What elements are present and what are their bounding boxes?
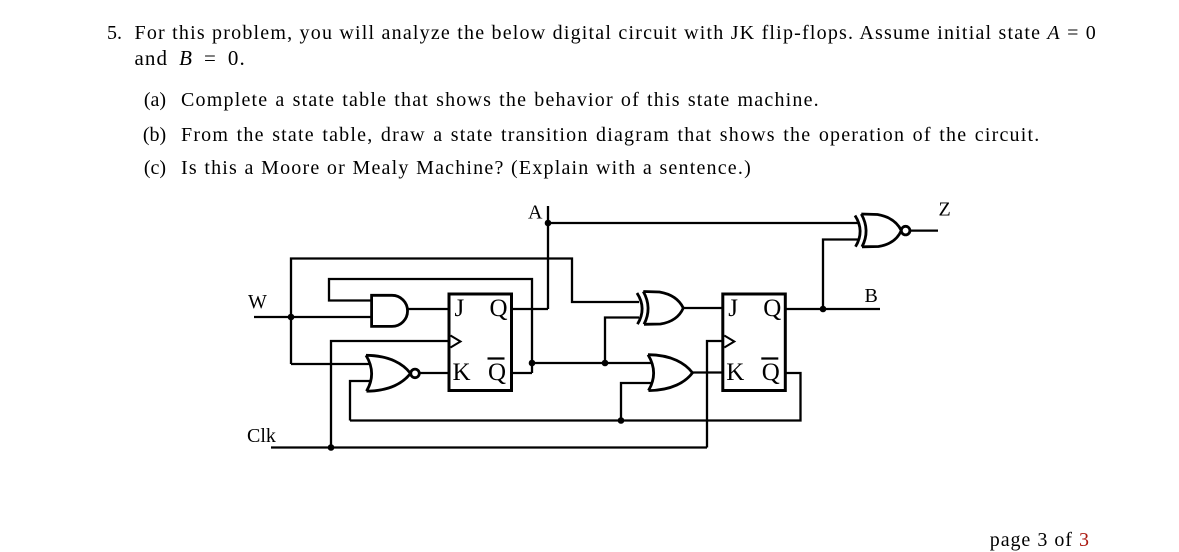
svg-text:W: W [248, 291, 267, 313]
svg-text:Q: Q [489, 295, 507, 322]
svg-text:Q: Q [763, 295, 781, 322]
svg-text:Clk: Clk [247, 425, 276, 447]
svg-text:Q: Q [488, 359, 506, 386]
svg-text:A: A [528, 201, 543, 223]
svg-text:K: K [452, 359, 470, 386]
svg-text:K: K [726, 359, 744, 386]
svg-text:J: J [728, 295, 738, 322]
svg-text:Z: Z [939, 199, 951, 221]
svg-text:Q: Q [762, 359, 780, 386]
svg-text:B: B [864, 285, 877, 307]
svg-text:J: J [454, 295, 464, 322]
